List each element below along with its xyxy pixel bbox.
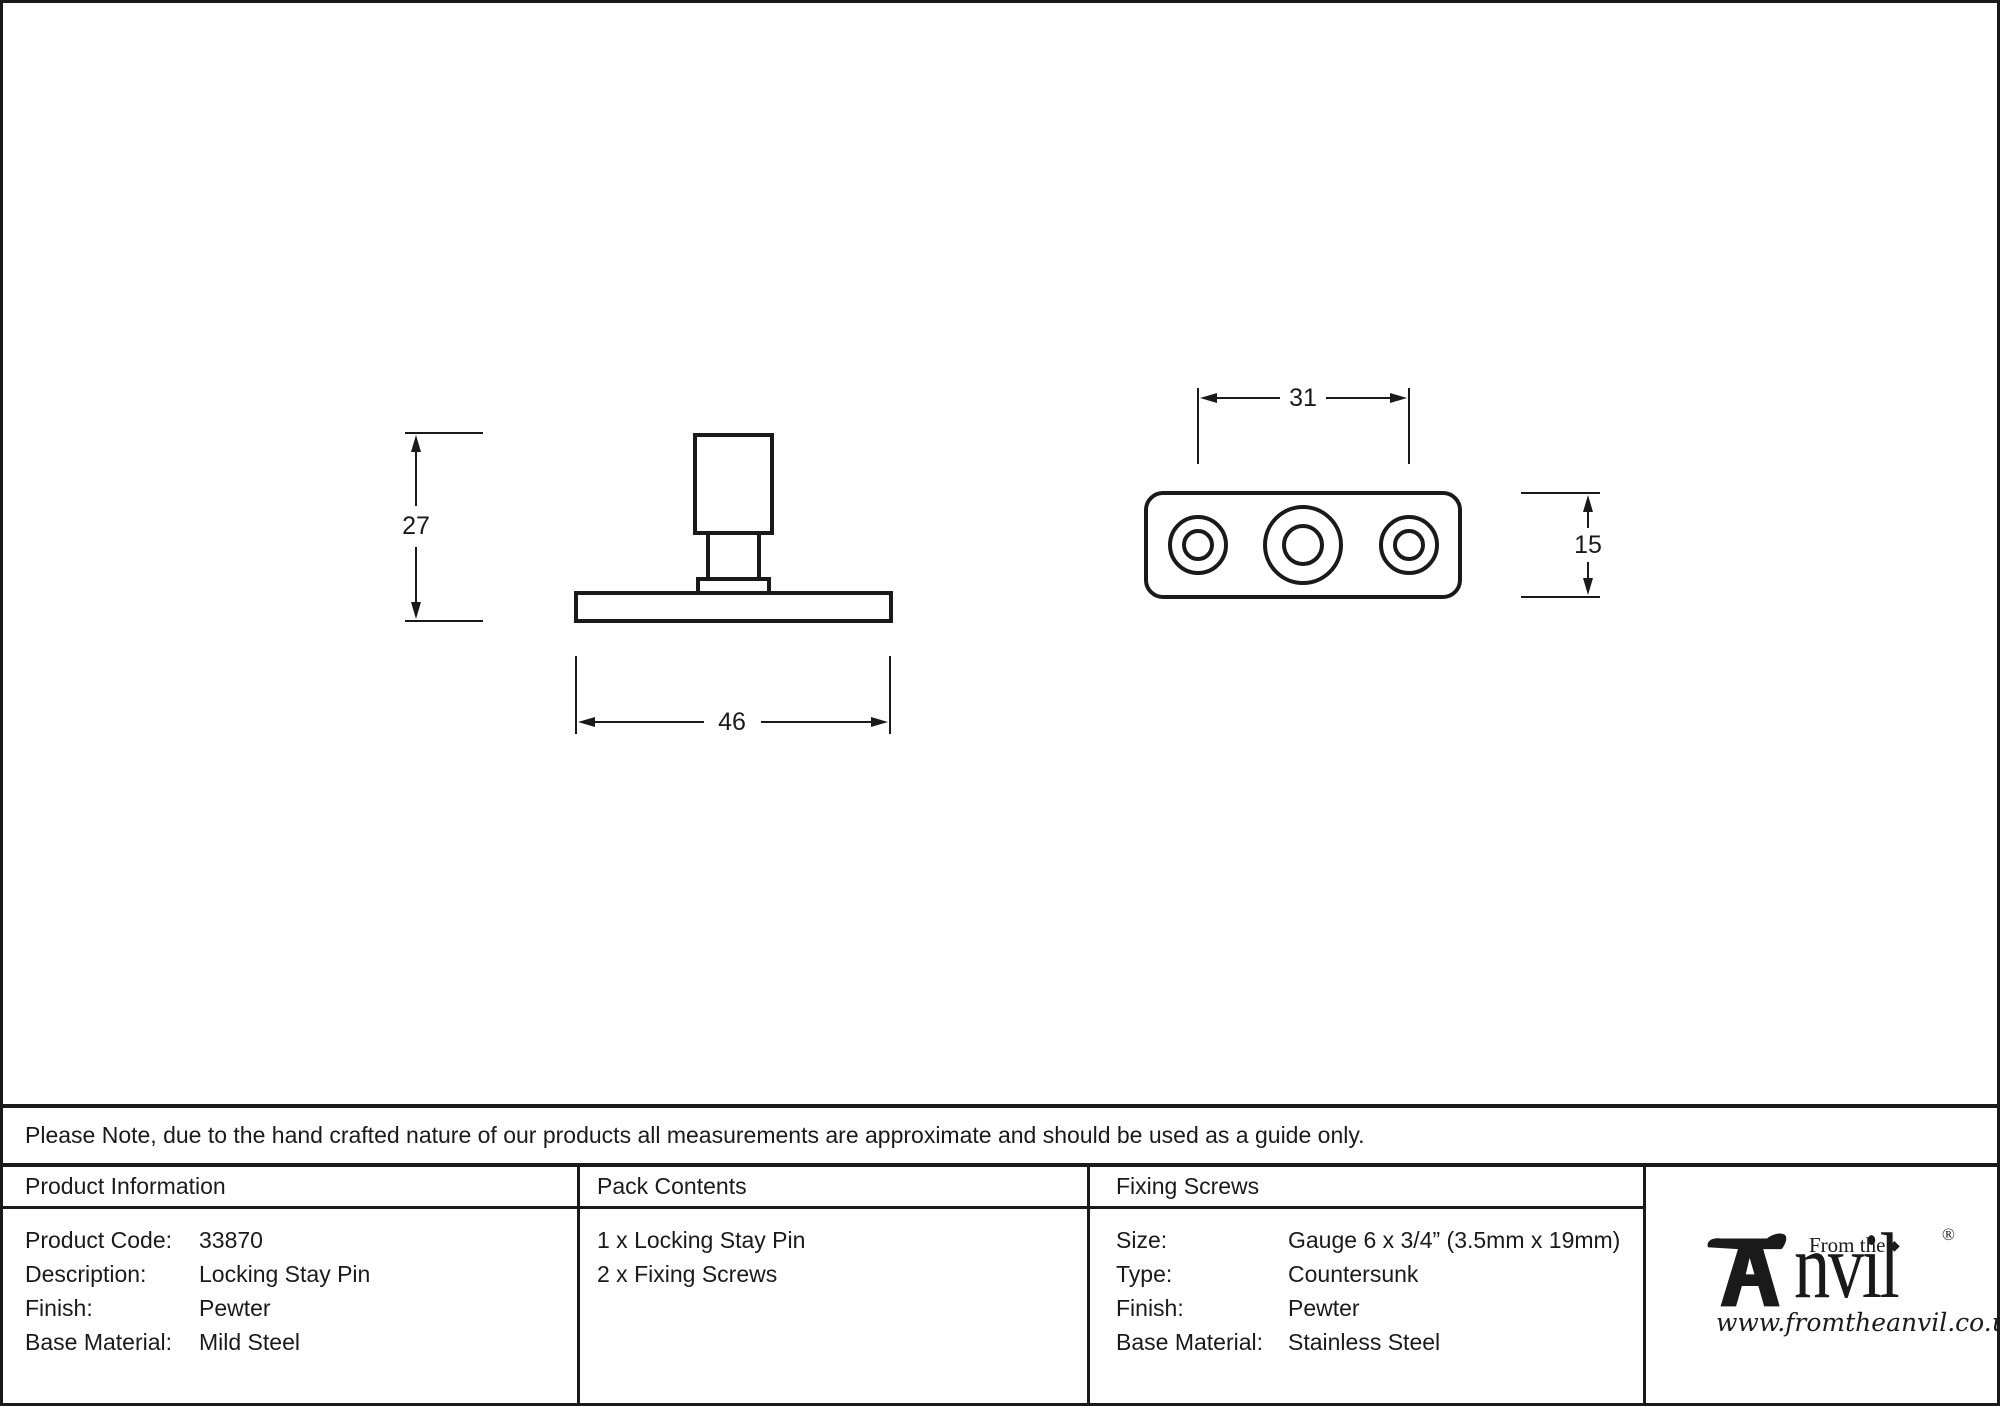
screw-finish-label: Finish: (1116, 1291, 1288, 1325)
screw-size-label: Size: (1116, 1223, 1288, 1257)
logo-brand-text: nvil (1794, 1220, 1897, 1313)
table-row: Size: Gauge 6 x 3/4” (3.5mm x 19mm) (1116, 1223, 1643, 1257)
table-row: Finish: Pewter (25, 1291, 577, 1325)
arrowhead-right-icon (1390, 393, 1407, 403)
top-view-width-label: 31 (1289, 384, 1317, 412)
fixing-screws-body: Size: Gauge 6 x 3/4” (3.5mm x 19mm) Type… (1090, 1209, 1643, 1403)
screw-base-material-label: Base Material: (1116, 1325, 1288, 1359)
product-info-table: Product Information Product Code: 33870 … (3, 1167, 1997, 1403)
brand-logo-cell: From the ◆ nvil ® www.fromtheanvil.co.uk (1646, 1167, 1997, 1403)
finish-label: Finish: (25, 1291, 199, 1325)
side-view-height-label: 27 (402, 512, 430, 540)
pack-contents-column: Pack Contents 1 x Locking Stay Pin 2 x F… (580, 1167, 1090, 1403)
product-information-header-label: Product Information (25, 1173, 226, 1200)
measurement-note-row: Please Note, due to the hand crafted nat… (3, 1104, 1997, 1167)
logo-website-text: www.fromtheanvil.co.uk (1716, 1308, 2000, 1337)
screw-type-label: Type: (1116, 1257, 1288, 1291)
screw-size-value: Gauge 6 x 3/4” (3.5mm x 19mm) (1288, 1223, 1620, 1257)
pack-contents-body: 1 x Locking Stay Pin 2 x Fixing Screws (580, 1209, 1087, 1403)
description-label: Description: (25, 1257, 199, 1291)
technical-drawing-area: 27 46 (3, 3, 1997, 1104)
top-view-height-label: 15 (1574, 531, 1602, 559)
table-row: Base Material: Mild Steel (25, 1325, 577, 1359)
side-view-width-label: 46 (718, 708, 746, 736)
list-item: 1 x Locking Stay Pin (597, 1223, 1087, 1257)
side-view-drawing: 27 46 (402, 433, 891, 736)
side-view-knob (695, 435, 772, 533)
arrowhead-left-icon (578, 717, 595, 727)
side-view-flange (698, 579, 769, 593)
table-row: Base Material: Stainless Steel (1116, 1325, 1643, 1359)
fixing-screws-header: Fixing Screws (1090, 1167, 1643, 1209)
finish-value: Pewter (199, 1291, 271, 1325)
arrowhead-down-icon (411, 602, 421, 619)
screw-type-value: Countersunk (1288, 1257, 1418, 1291)
table-row: Product Code: 33870 (25, 1223, 577, 1257)
product-information-header: Product Information (3, 1167, 577, 1209)
table-row: Description: Locking Stay Pin (25, 1257, 577, 1291)
product-code-value: 33870 (199, 1223, 263, 1257)
description-value: Locking Stay Pin (199, 1257, 370, 1291)
base-material-value: Mild Steel (199, 1325, 300, 1359)
fixing-screws-header-label: Fixing Screws (1116, 1173, 1259, 1200)
pack-contents-header-label: Pack Contents (597, 1173, 747, 1200)
product-information-body: Product Code: 33870 Description: Locking… (3, 1209, 577, 1403)
base-material-label: Base Material: (25, 1325, 199, 1359)
table-row: Type: Countersunk (1116, 1257, 1643, 1291)
technical-drawing-svg: 27 46 (3, 3, 1997, 1104)
side-view-base-plate (576, 593, 891, 621)
measurement-note-text: Please Note, due to the hand crafted nat… (25, 1122, 1365, 1149)
top-view-drawing: 31 15 (1146, 384, 1602, 597)
anvil-icon (1705, 1230, 1802, 1309)
arrowhead-up-icon (411, 435, 421, 452)
product-information-column: Product Information Product Code: 33870 … (3, 1167, 580, 1403)
fixing-screws-column: Fixing Screws Size: Gauge 6 x 3/4” (3.5m… (1090, 1167, 1646, 1403)
arrowhead-up-icon (1583, 495, 1593, 512)
product-datasheet: 27 46 (0, 0, 2000, 1406)
pack-contents-header: Pack Contents (580, 1167, 1087, 1209)
arrowhead-left-icon (1200, 393, 1217, 403)
screw-base-material-value: Stainless Steel (1288, 1325, 1440, 1359)
list-item: 2 x Fixing Screws (597, 1257, 1087, 1291)
from-the-anvil-logo: From the ◆ nvil ® www.fromtheanvil.co.uk (1646, 1167, 1997, 1403)
arrowhead-right-icon (871, 717, 888, 727)
screw-finish-value: Pewter (1288, 1291, 1360, 1325)
arrowhead-down-icon (1583, 578, 1593, 595)
table-row: Finish: Pewter (1116, 1291, 1643, 1325)
product-code-label: Product Code: (25, 1223, 199, 1257)
registered-trademark-icon: ® (1942, 1225, 1955, 1245)
